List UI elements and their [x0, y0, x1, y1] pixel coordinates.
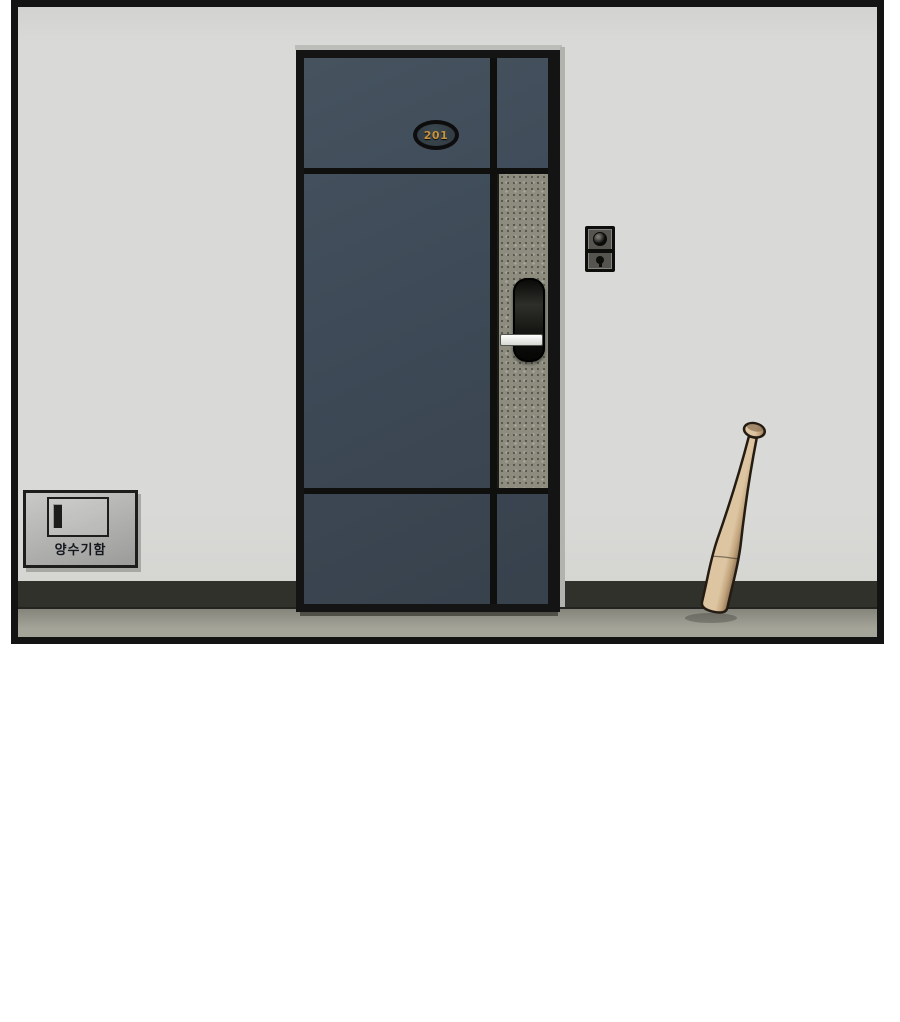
digital-door-lock	[513, 278, 545, 362]
bat-floor-shadow	[685, 613, 737, 623]
meter-box-label: 양수기함	[26, 542, 135, 559]
meter-box-handle-slot	[53, 504, 62, 528]
meter-box-door	[47, 497, 109, 537]
doorbell-divider-bar	[588, 249, 612, 253]
front-door: 201	[296, 50, 560, 612]
door-transom-divider	[304, 168, 548, 174]
water-meter-box: 양수기함	[23, 490, 138, 568]
door-lower-divider	[304, 488, 548, 494]
door-frame-right-highlight	[560, 47, 565, 607]
page: { "scene": { "type": "webtoon-panel-illu…	[0, 0, 900, 1022]
video-doorbell	[585, 226, 615, 272]
baseball-bat	[680, 408, 790, 630]
door-number-text: 201	[424, 129, 448, 142]
doorbell-camera-lens	[593, 232, 607, 246]
bat-body	[700, 434, 765, 614]
door-vertical-divider	[490, 58, 497, 604]
doorbell-button-stem	[599, 262, 602, 267]
door-number-plate: 201	[413, 120, 459, 150]
door-lock-handle	[500, 334, 543, 346]
hallway-panel: 양수기함 201	[11, 0, 884, 644]
